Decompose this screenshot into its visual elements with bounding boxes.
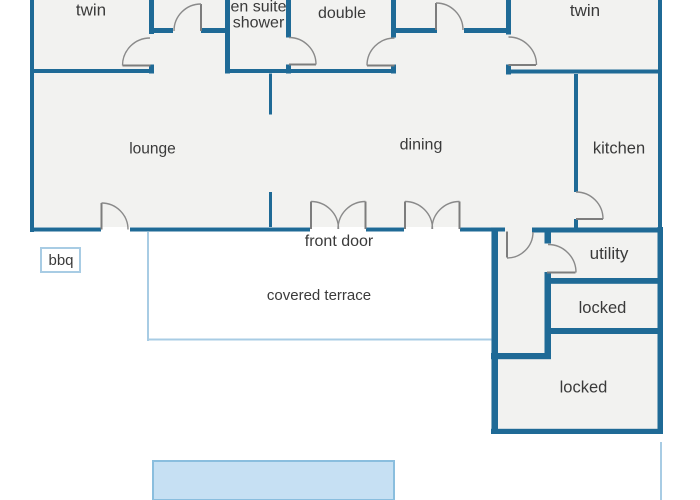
svg-text:kitchen: kitchen: [593, 140, 645, 158]
svg-text:twin: twin: [76, 1, 106, 20]
svg-text:bbq: bbq: [48, 252, 73, 269]
svg-text:locked: locked: [560, 379, 608, 397]
svg-text:lounge: lounge: [129, 141, 176, 158]
svg-text:covered terrace: covered terrace: [267, 287, 371, 304]
svg-text:en suite: en suite: [230, 0, 286, 16]
svg-text:twin: twin: [570, 1, 600, 20]
svg-text:dining: dining: [400, 137, 443, 154]
svg-text:double: double: [318, 5, 366, 22]
svg-text:shower: shower: [233, 15, 285, 32]
svg-text:utility: utility: [590, 244, 629, 263]
svg-text:locked: locked: [579, 299, 627, 317]
svg-text:front door: front door: [305, 233, 374, 250]
